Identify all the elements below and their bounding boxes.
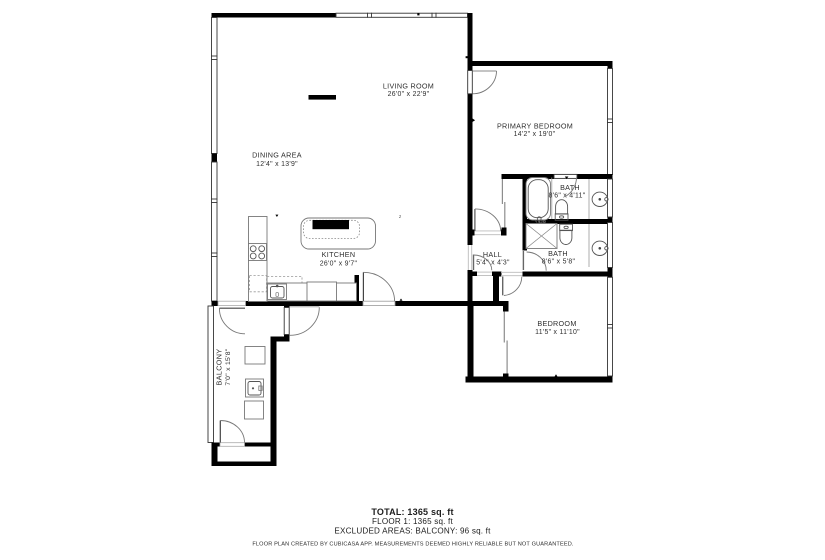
svg-text:BALCONY: BALCONY xyxy=(215,349,224,386)
svg-text:26'0" x 22'9": 26'0" x 22'9" xyxy=(388,91,430,98)
svg-text:BATH: BATH xyxy=(560,183,580,192)
svg-text:12'4" x 13'9": 12'4" x 13'9" xyxy=(256,161,298,168)
svg-text:8'6" x 4'11": 8'6" x 4'11" xyxy=(548,193,585,200)
svg-text:TOTAL: 1365 sq. ft: TOTAL: 1365 sq. ft xyxy=(371,507,453,517)
svg-text:11'5" x 11'10": 11'5" x 11'10" xyxy=(535,329,580,336)
svg-text:EXCLUDED AREAS: BALCONY: 96 sq: EXCLUDED AREAS: BALCONY: 96 sq. ft xyxy=(334,526,491,535)
svg-text:26'0" x 9'7": 26'0" x 9'7" xyxy=(320,261,358,268)
svg-text:14'2" x 19'0": 14'2" x 19'0" xyxy=(514,131,556,138)
svg-text:FLOOR 1: 1365 sq. ft: FLOOR 1: 1365 sq. ft xyxy=(372,517,453,526)
svg-text:KITCHEN: KITCHEN xyxy=(322,250,356,259)
svg-text:FLOOR PLAN CREATED BY CUBICASA: FLOOR PLAN CREATED BY CUBICASA APP. MEAS… xyxy=(252,541,574,547)
svg-text:5'4" x 4'3": 5'4" x 4'3" xyxy=(476,259,510,266)
svg-text:DINING AREA: DINING AREA xyxy=(252,151,302,160)
svg-text:PRIMARY BEDROOM: PRIMARY BEDROOM xyxy=(497,122,573,131)
svg-text:HALL: HALL xyxy=(483,250,502,259)
svg-text:BEDROOM: BEDROOM xyxy=(537,319,576,328)
svg-text:BATH: BATH xyxy=(548,249,568,258)
svg-text:7'0" x 15'8": 7'0" x 15'8" xyxy=(225,348,232,385)
svg-text:LIVING ROOM: LIVING ROOM xyxy=(383,82,434,91)
svg-text:8'6" x 5'8": 8'6" x 5'8" xyxy=(542,259,576,266)
